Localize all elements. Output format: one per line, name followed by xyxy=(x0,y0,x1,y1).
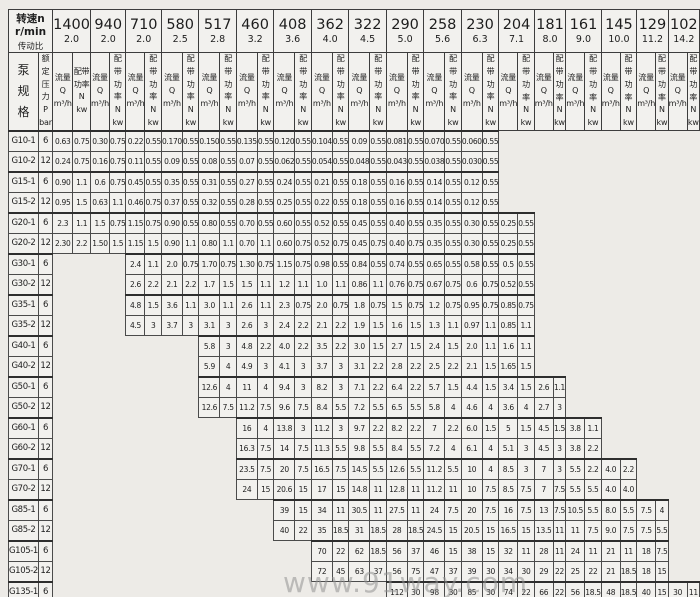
power-label: 配带功率Nkw xyxy=(585,53,602,131)
flow-value: 0.45 xyxy=(349,213,370,234)
power-value: 4 xyxy=(482,397,499,418)
empty-cell xyxy=(601,192,636,213)
flow-value: 0.25 xyxy=(274,192,295,213)
pressure-cell: 12 xyxy=(38,397,52,418)
power-label: 配带功率Nkw xyxy=(553,53,566,131)
empty-cell xyxy=(91,336,126,357)
pump-spec-label: 泵规格 xyxy=(9,53,39,131)
power-value: 0.55 xyxy=(332,192,349,213)
flow-value: 3.4 xyxy=(499,377,518,398)
power-value: 0.75 xyxy=(332,295,349,316)
flow-value: 13 xyxy=(534,500,553,521)
flow-value: 0.048 xyxy=(349,151,370,172)
power-value: 30 xyxy=(518,561,535,582)
speed-ratio: 2.0 xyxy=(126,35,160,45)
flow-value: 0.37 xyxy=(161,192,182,213)
model-cell: G50-1 xyxy=(9,377,39,398)
pressure-cell: 12 xyxy=(38,274,52,295)
power-value: 0.75 xyxy=(407,274,424,295)
flow-value: 0.170 xyxy=(161,131,182,152)
flow-value: 40 xyxy=(274,520,295,541)
pump-selection-table: 转速n r/min传动比14002.09402.07102.05802.5517… xyxy=(8,9,700,597)
empty-cell xyxy=(534,192,565,213)
table-row: G85-163915341130.51127.511247.5207.5167.… xyxy=(9,500,700,521)
flow-value: 14.8 xyxy=(349,479,370,500)
model-cell: G10-1 xyxy=(9,131,39,152)
power-value: 0.55 xyxy=(145,131,162,152)
model-cell: G15-1 xyxy=(9,172,39,193)
power-value: 2.2 xyxy=(620,459,637,480)
flow-value: 0.070 xyxy=(424,131,445,152)
empty-cell xyxy=(53,295,91,316)
flow-value: 0.062 xyxy=(274,151,295,172)
empty-cell xyxy=(637,295,668,316)
power-value: 3 xyxy=(553,438,566,459)
speed-column-header: 9402.0 xyxy=(91,10,126,53)
power-value: 5.5 xyxy=(585,479,602,500)
power-value: 0.75 xyxy=(482,295,499,316)
flow-value: 0.135 xyxy=(236,131,257,152)
power-value: 7.5 xyxy=(518,500,535,521)
power-value: 22 xyxy=(553,561,566,582)
speed-rpm: 258 xyxy=(424,16,460,35)
empty-cell xyxy=(668,151,699,172)
power-label: 配带功率Nkw xyxy=(109,53,126,131)
speed-ratio: 2.0 xyxy=(91,35,125,45)
empty-cell xyxy=(91,500,126,521)
table-row: G135-161123098308530742266225618.54818.5… xyxy=(9,582,700,597)
power-value: 0.55 xyxy=(257,192,274,213)
speed-ratio: 10.0 xyxy=(602,35,636,45)
empty-cell xyxy=(161,356,198,377)
flow-value: 30.5 xyxy=(349,500,370,521)
flow-value: 0.86 xyxy=(349,274,370,295)
flow-value: 2.6 xyxy=(126,274,145,295)
empty-cell xyxy=(161,397,198,418)
power-value: 1.1 xyxy=(445,315,462,336)
flow-value: 11.2 xyxy=(236,397,257,418)
flow-value: 0.70 xyxy=(236,213,257,234)
flow-value: 1.65 xyxy=(499,356,518,377)
power-value: 0.75 xyxy=(445,274,462,295)
flow-value: 9.0 xyxy=(601,520,620,541)
power-value: 0.55 xyxy=(445,254,462,275)
power-value: 3 xyxy=(295,356,312,377)
flow-value: 16.5 xyxy=(311,459,332,480)
pressure-cell: 12 xyxy=(38,192,52,213)
empty-cell xyxy=(126,479,161,500)
empty-cell xyxy=(637,356,668,377)
flow-value: 0.67 xyxy=(424,274,445,295)
power-value: 0.55 xyxy=(257,131,274,152)
empty-cell xyxy=(534,356,565,377)
power-value: 15 xyxy=(518,520,535,541)
power-value: 0.75 xyxy=(182,254,199,275)
flow-value: 10 xyxy=(461,459,482,480)
power-value: 5.5 xyxy=(407,459,424,480)
empty-cell xyxy=(91,418,126,439)
speed-column-header: 5802.5 xyxy=(161,10,198,53)
flow-value: 34 xyxy=(499,561,518,582)
flow-value: 0.09 xyxy=(161,151,182,172)
flow-value: 0.70 xyxy=(236,233,257,254)
power-value: 5.5 xyxy=(656,520,669,541)
power-value: 0.75 xyxy=(109,213,126,234)
flow-value: 3.8 xyxy=(566,438,585,459)
flow-value: 0.12 xyxy=(461,192,482,213)
power-value: 0.55 xyxy=(332,151,349,172)
speed-column-header: 4083.6 xyxy=(274,10,311,53)
pressure-cell: 6 xyxy=(38,336,52,357)
empty-cell xyxy=(668,254,699,275)
flow-value: 4.8 xyxy=(126,295,145,316)
power-value: 0.55 xyxy=(295,213,312,234)
power-value: 7.5 xyxy=(482,500,499,521)
speed-header-row: 转速n r/min传动比14002.09402.07102.05802.5517… xyxy=(9,10,700,53)
power-value: 0.55 xyxy=(182,131,199,152)
power-value: 4 xyxy=(220,377,237,398)
empty-cell xyxy=(236,500,273,521)
flow-value: 28 xyxy=(534,541,553,562)
model-cell: G85-1 xyxy=(9,500,39,521)
power-value: 15 xyxy=(295,500,312,521)
power-value: 0.75 xyxy=(407,295,424,316)
power-value: 0.55 xyxy=(407,192,424,213)
speed-rpm: 940 xyxy=(91,16,125,35)
empty-cell xyxy=(534,336,565,357)
power-value: 2.2 xyxy=(585,438,602,459)
flow-value: 27.5 xyxy=(386,500,407,521)
power-value: 0.55 xyxy=(445,172,462,193)
speed-column-header: 1818.0 xyxy=(534,10,565,53)
power-value: 0.55 xyxy=(482,233,499,254)
power-value: 5.5 xyxy=(332,397,349,418)
power-value: 18.5 xyxy=(370,541,387,562)
power-value: 0.55 xyxy=(220,172,237,193)
flow-value: 31 xyxy=(349,520,370,541)
flow-value: 7.2 xyxy=(424,438,445,459)
power-value: 0.55 xyxy=(257,172,274,193)
flow-value: 66 xyxy=(534,582,553,597)
power-value: 18.5 xyxy=(620,561,637,582)
power-value: 0.55 xyxy=(332,131,349,152)
flow-value: 56 xyxy=(386,541,407,562)
pressure-cell: 6 xyxy=(38,418,52,439)
pressure-label: 额定压力Pbar xyxy=(38,53,52,131)
flow-value: 0.35 xyxy=(424,233,445,254)
power-label: 配带功率Nkw xyxy=(482,53,499,131)
empty-cell xyxy=(311,582,348,597)
power-value: 0.55 xyxy=(370,131,387,152)
flow-value: 4.8 xyxy=(236,336,257,357)
empty-cell xyxy=(668,500,699,521)
model-cell: G40-1 xyxy=(9,336,39,357)
power-value: 1.5 xyxy=(482,377,499,398)
power-label: 配带功率Nkw xyxy=(370,53,387,131)
empty-cell xyxy=(91,459,126,480)
empty-cell xyxy=(199,520,236,541)
power-value: 4 xyxy=(257,418,274,439)
power-value: 3 xyxy=(518,459,535,480)
flow-value: 0.97 xyxy=(461,315,482,336)
empty-cell xyxy=(601,397,636,418)
speed-rpm: 362 xyxy=(312,16,348,35)
empty-cell xyxy=(566,336,601,357)
empty-cell xyxy=(199,561,236,582)
flow-value: 0.16 xyxy=(386,172,407,193)
empty-cell xyxy=(601,377,636,398)
pressure-cell: 6 xyxy=(38,213,52,234)
model-cell: G10-2 xyxy=(9,151,39,172)
power-value: 0.55 xyxy=(407,172,424,193)
flow-value: 0.11 xyxy=(126,151,145,172)
power-value: 75 xyxy=(407,561,424,582)
flow-value: 7.5 xyxy=(637,500,656,521)
power-value: 0.55 xyxy=(145,151,162,172)
power-value: 7.5 xyxy=(482,479,499,500)
speed-ratio-label-cell: 转速n r/min传动比 xyxy=(9,10,53,53)
flow-value: 1.15 xyxy=(274,254,295,275)
power-label: 配带功率Nkw xyxy=(220,53,237,131)
power-value: 0.75 xyxy=(145,213,162,234)
flow-value: 0.40 xyxy=(386,213,407,234)
power-value: 5.5 xyxy=(407,397,424,418)
empty-cell xyxy=(53,541,91,562)
empty-cell xyxy=(236,541,273,562)
power-value: 5.5 xyxy=(332,438,349,459)
power-value: 15 xyxy=(445,520,462,541)
speed-ratio: 7.1 xyxy=(499,35,533,45)
empty-cell xyxy=(274,582,311,597)
speed-ratio: 5.0 xyxy=(387,35,423,45)
empty-cell xyxy=(637,274,668,295)
power-value: 3 xyxy=(220,315,237,336)
flow-value: 4.5 xyxy=(534,438,553,459)
empty-cell xyxy=(499,131,534,152)
flow-label: 流量Qm³/h xyxy=(461,53,482,131)
empty-cell xyxy=(601,336,636,357)
speed-rpm: 129 xyxy=(637,16,667,35)
empty-cell xyxy=(53,520,91,541)
flow-value: 2.4 xyxy=(126,254,145,275)
empty-cell xyxy=(91,541,126,562)
model-cell: G15-2 xyxy=(9,192,39,213)
flow-value: 20.5 xyxy=(461,520,482,541)
flow-value: 7 xyxy=(424,418,445,439)
flow-value: 98 xyxy=(424,582,445,597)
empty-cell xyxy=(499,172,534,193)
flow-value: 8.2 xyxy=(386,418,407,439)
flow-value: 0.21 xyxy=(311,172,332,193)
flow-value: 16 xyxy=(236,418,257,439)
flow-value: 0.65 xyxy=(424,254,445,275)
flow-value: 3.6 xyxy=(499,397,518,418)
model-cell: G50-2 xyxy=(9,397,39,418)
flow-value: 21 xyxy=(601,541,620,562)
flow-value: 0.63 xyxy=(91,192,110,213)
flow-value: 5.7 xyxy=(424,377,445,398)
power-value: 0.55 xyxy=(370,254,387,275)
power-value: 7.5 xyxy=(257,397,274,418)
power-value: 11 xyxy=(407,479,424,500)
flow-value: 0.90 xyxy=(161,213,182,234)
flow-value: 7 xyxy=(534,459,553,480)
power-value: 0.55 xyxy=(295,192,312,213)
power-value: 1.5 xyxy=(109,233,126,254)
flow-value: 0.90 xyxy=(53,172,73,193)
power-value: 0.55 xyxy=(370,172,387,193)
power-value: 0.75 xyxy=(370,233,387,254)
power-value: 4 xyxy=(518,397,535,418)
speed-ratio: 3.2 xyxy=(237,35,273,45)
flow-value: 12.6 xyxy=(199,377,220,398)
flow-value: 14.5 xyxy=(349,459,370,480)
flow-value: 0.95 xyxy=(53,192,73,213)
flow-value: 2.0 xyxy=(161,254,182,275)
flow-value: 3.0 xyxy=(349,336,370,357)
power-value: 0.75 xyxy=(73,131,91,152)
power-value: 1.1 xyxy=(295,274,312,295)
empty-cell xyxy=(637,459,668,480)
power-value: 11 xyxy=(407,500,424,521)
speed-column-header: 5172.8 xyxy=(199,10,236,53)
power-value: 7.5 xyxy=(518,479,535,500)
empty-cell xyxy=(534,274,565,295)
table-row: G60-21216.37.5147.511.35.59.85.58.45.57.… xyxy=(9,438,700,459)
flow-value: 0.054 xyxy=(311,151,332,172)
empty-cell xyxy=(566,377,601,398)
speed-rpm: 580 xyxy=(162,16,198,35)
power-value: 1.5 xyxy=(553,418,566,439)
flow-value: 0.30 xyxy=(461,233,482,254)
pressure-cell: 12 xyxy=(38,561,52,582)
power-value: 1.5 xyxy=(407,315,424,336)
flow-value: 1.6 xyxy=(386,315,407,336)
power-value: 7.5 xyxy=(295,459,312,480)
flow-value: 20 xyxy=(274,459,295,480)
flow-value: 2.4 xyxy=(274,315,295,336)
power-value: 0.55 xyxy=(482,213,499,234)
flow-value: 0.6 xyxy=(91,172,110,193)
flow-value: 11 xyxy=(236,377,257,398)
flow-value: 23.5 xyxy=(236,459,257,480)
flow-value: 5.9 xyxy=(199,356,220,377)
flow-value: 0.27 xyxy=(236,172,257,193)
speed-rpm: 408 xyxy=(274,16,310,35)
table-row: G105-21272456337567547373930343029222522… xyxy=(9,561,700,582)
flow-value: 8.5 xyxy=(499,479,518,500)
power-value: 0.75 xyxy=(220,254,237,275)
flow-value: 4.5 xyxy=(126,315,145,336)
pressure-cell: 6 xyxy=(38,377,52,398)
empty-cell xyxy=(91,479,126,500)
flow-value: 4.0 xyxy=(601,479,620,500)
flow-value: 56 xyxy=(386,561,407,582)
empty-cell xyxy=(668,561,699,582)
flow-value: 2.0 xyxy=(461,336,482,357)
flow-label: 流量Qm³/h xyxy=(311,53,332,131)
flow-value: 11.3 xyxy=(311,438,332,459)
empty-cell xyxy=(91,582,126,597)
power-value: 2.2 xyxy=(370,356,387,377)
flow-value: 1.2 xyxy=(424,295,445,316)
flow-value: 0.95 xyxy=(461,295,482,316)
empty-cell xyxy=(601,295,636,316)
power-value: 1.1 xyxy=(518,336,535,357)
empty-cell xyxy=(601,172,636,193)
scanned-table-page: 转速n r/min传动比14002.09402.07102.05802.5517… xyxy=(0,0,700,597)
power-value: 0.75 xyxy=(370,295,387,316)
flow-value: 21 xyxy=(601,561,620,582)
empty-cell xyxy=(668,233,699,254)
power-value: 1.5 xyxy=(518,418,535,439)
empty-cell xyxy=(161,582,198,597)
table-row: G10-160.630.750.300.750.220.550.1700.550… xyxy=(9,131,700,152)
empty-cell xyxy=(637,336,668,357)
flow-value: 1.50 xyxy=(91,233,110,254)
power-value: 18.5 xyxy=(407,520,424,541)
flow-value: 13.8 xyxy=(274,418,295,439)
flow-value: 3.7 xyxy=(311,356,332,377)
flow-label: 流量Qm³/h xyxy=(349,53,370,131)
speed-column-header: 14002.0 xyxy=(53,10,91,53)
empty-cell xyxy=(601,213,636,234)
power-value: 1.5 xyxy=(145,295,162,316)
power-value: 18.5 xyxy=(620,582,637,597)
empty-cell xyxy=(53,561,91,582)
empty-cell xyxy=(601,356,636,377)
flow-value: 3.7 xyxy=(161,315,182,336)
empty-cell xyxy=(91,315,126,336)
empty-cell xyxy=(668,377,699,398)
power-value: 0.55 xyxy=(482,192,499,213)
power-value: 3 xyxy=(257,356,274,377)
power-value: 4 xyxy=(656,500,669,521)
empty-cell xyxy=(499,192,534,213)
empty-cell xyxy=(668,541,699,562)
flow-value: 6.4 xyxy=(386,377,407,398)
power-value: 0.55 xyxy=(220,131,237,152)
empty-cell xyxy=(126,397,161,418)
flow-value: 0.16 xyxy=(91,151,110,172)
empty-cell xyxy=(53,582,91,597)
empty-cell xyxy=(566,233,601,254)
power-value: 0.55 xyxy=(407,213,424,234)
empty-cell xyxy=(637,131,668,152)
power-value: 2.2 xyxy=(145,274,162,295)
power-value: 0.55 xyxy=(445,151,462,172)
power-value: 0.55 xyxy=(370,192,387,213)
flow-value: 5.1 xyxy=(499,438,518,459)
model-cell: G35-1 xyxy=(9,295,39,316)
flow-value: 2.30 xyxy=(53,233,73,254)
power-value: 5.5 xyxy=(407,438,424,459)
flow-value: 0.07 xyxy=(236,151,257,172)
power-value: 1.1 xyxy=(518,315,535,336)
power-value: 0.55 xyxy=(295,151,312,172)
flow-value: 56 xyxy=(566,582,585,597)
empty-cell xyxy=(126,438,161,459)
pressure-cell: 6 xyxy=(38,500,52,521)
speed-column-header: 7102.0 xyxy=(126,10,161,53)
power-value: 1.5 xyxy=(73,192,91,213)
empty-cell xyxy=(91,254,126,275)
power-value: 1.1 xyxy=(257,233,274,254)
flow-value: 1.15 xyxy=(126,233,145,254)
flow-value: 2.5 xyxy=(424,356,445,377)
flow-value: 9.4 xyxy=(274,377,295,398)
empty-cell xyxy=(534,315,565,336)
